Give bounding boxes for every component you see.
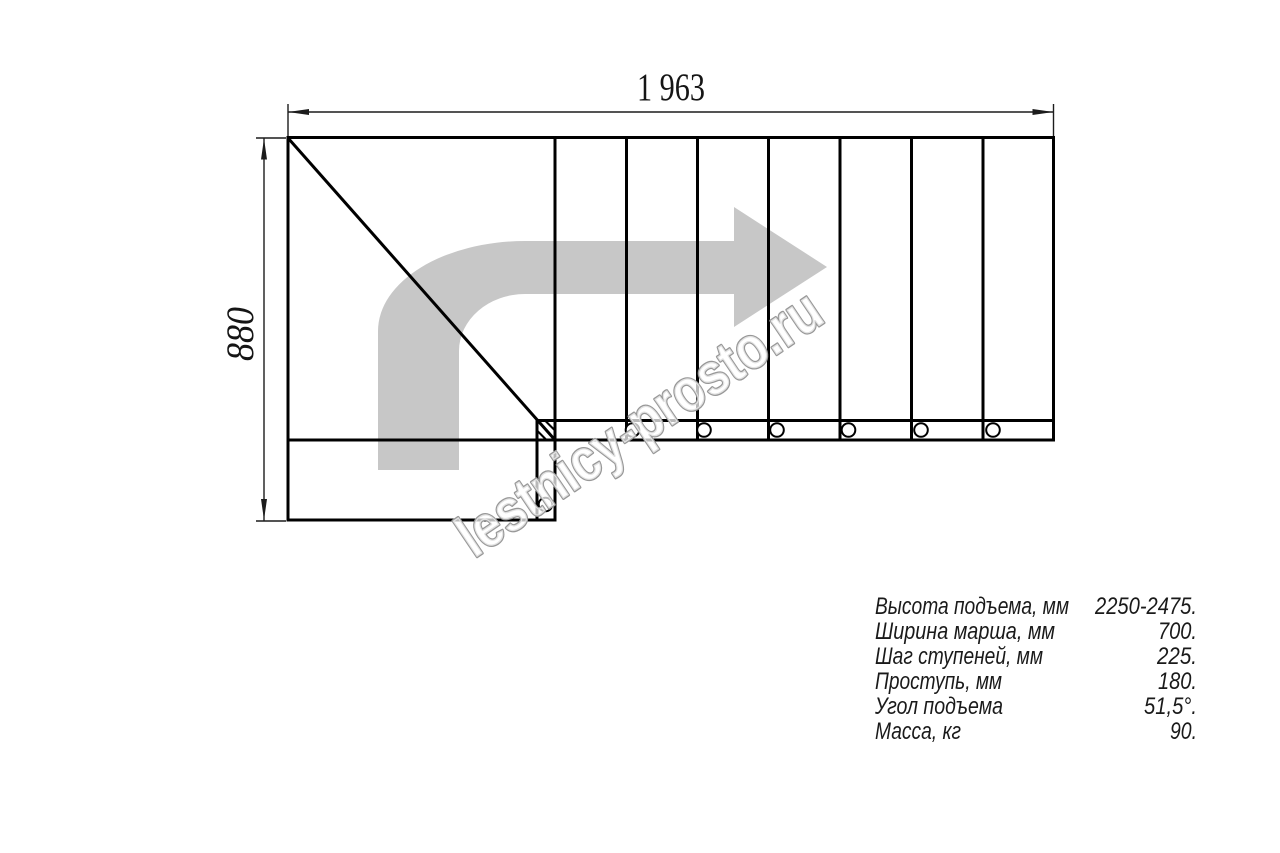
svg-text:90.: 90. bbox=[1170, 718, 1197, 745]
svg-text:225.: 225. bbox=[1156, 643, 1197, 670]
svg-text:1 963: 1 963 bbox=[637, 66, 705, 109]
svg-text:Масса, кг: Масса, кг bbox=[875, 718, 961, 745]
svg-text:Шаг ступеней, мм: Шаг ступеней, мм bbox=[875, 643, 1043, 670]
svg-text:Высота подъема, мм: Высота подъема, мм bbox=[875, 593, 1069, 620]
svg-text:880: 880 bbox=[219, 307, 262, 361]
svg-text:180.: 180. bbox=[1158, 668, 1197, 695]
svg-text:Ширина марша, мм: Ширина марша, мм bbox=[875, 618, 1055, 645]
svg-text:Угол подъема: Угол подъема bbox=[874, 693, 1003, 720]
svg-text:Проступь, мм: Проступь, мм bbox=[875, 668, 1002, 695]
svg-text:51,5°.: 51,5°. bbox=[1144, 693, 1197, 720]
svg-text:700.: 700. bbox=[1158, 618, 1197, 645]
svg-text:2250-2475.: 2250-2475. bbox=[1094, 593, 1197, 620]
